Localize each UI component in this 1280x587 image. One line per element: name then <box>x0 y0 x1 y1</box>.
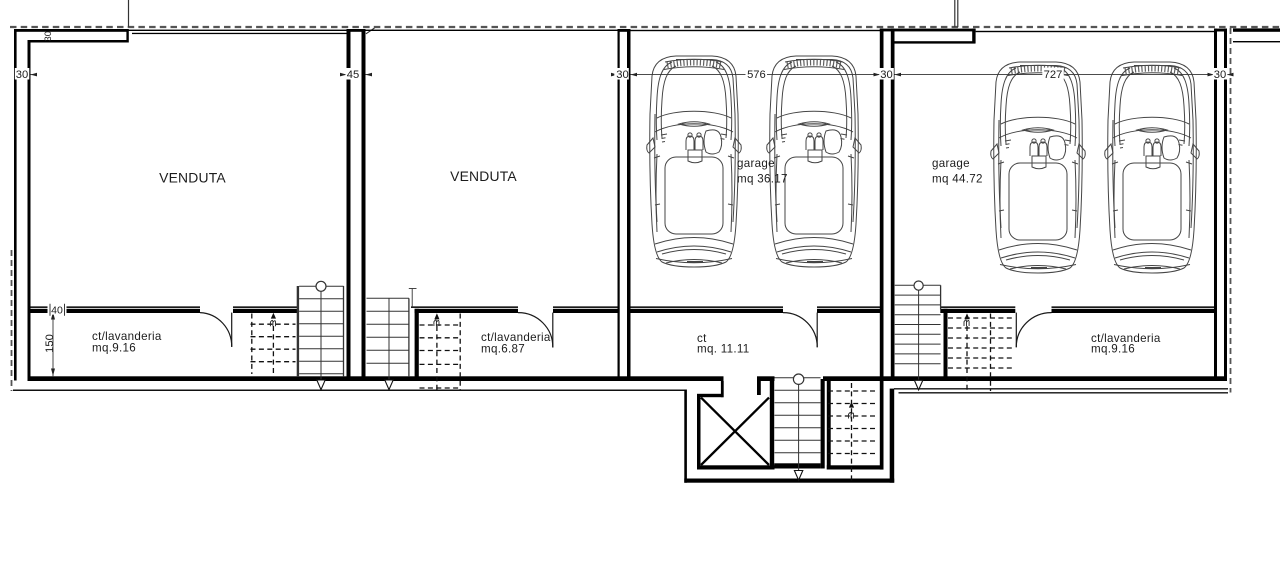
svg-text:30: 30 <box>16 69 28 81</box>
svg-text:mq.9.16: mq.9.16 <box>1091 342 1135 355</box>
svg-text:garage: garage <box>932 157 970 170</box>
svg-text:30: 30 <box>880 69 892 81</box>
svg-text:VENDUTA: VENDUTA <box>159 170 226 186</box>
svg-text:40: 40 <box>51 304 63 316</box>
svg-text:mq. 11.11: mq. 11.11 <box>697 342 750 355</box>
svg-text:30: 30 <box>42 31 53 41</box>
svg-text:576: 576 <box>747 69 766 81</box>
svg-text:mq.9.16: mq.9.16 <box>92 342 136 355</box>
svg-text:30: 30 <box>616 69 628 81</box>
svg-text:30: 30 <box>1214 69 1226 81</box>
svg-text:mq 44.72: mq 44.72 <box>932 173 983 186</box>
svg-text:727: 727 <box>1044 69 1063 81</box>
svg-text:150: 150 <box>44 334 56 353</box>
svg-text:45: 45 <box>347 69 359 81</box>
svg-text:mq 36.17: mq 36.17 <box>737 173 788 186</box>
svg-text:garage: garage <box>737 157 775 170</box>
svg-text:VENDUTA: VENDUTA <box>450 168 517 184</box>
svg-text:mq.6.87: mq.6.87 <box>481 342 525 355</box>
